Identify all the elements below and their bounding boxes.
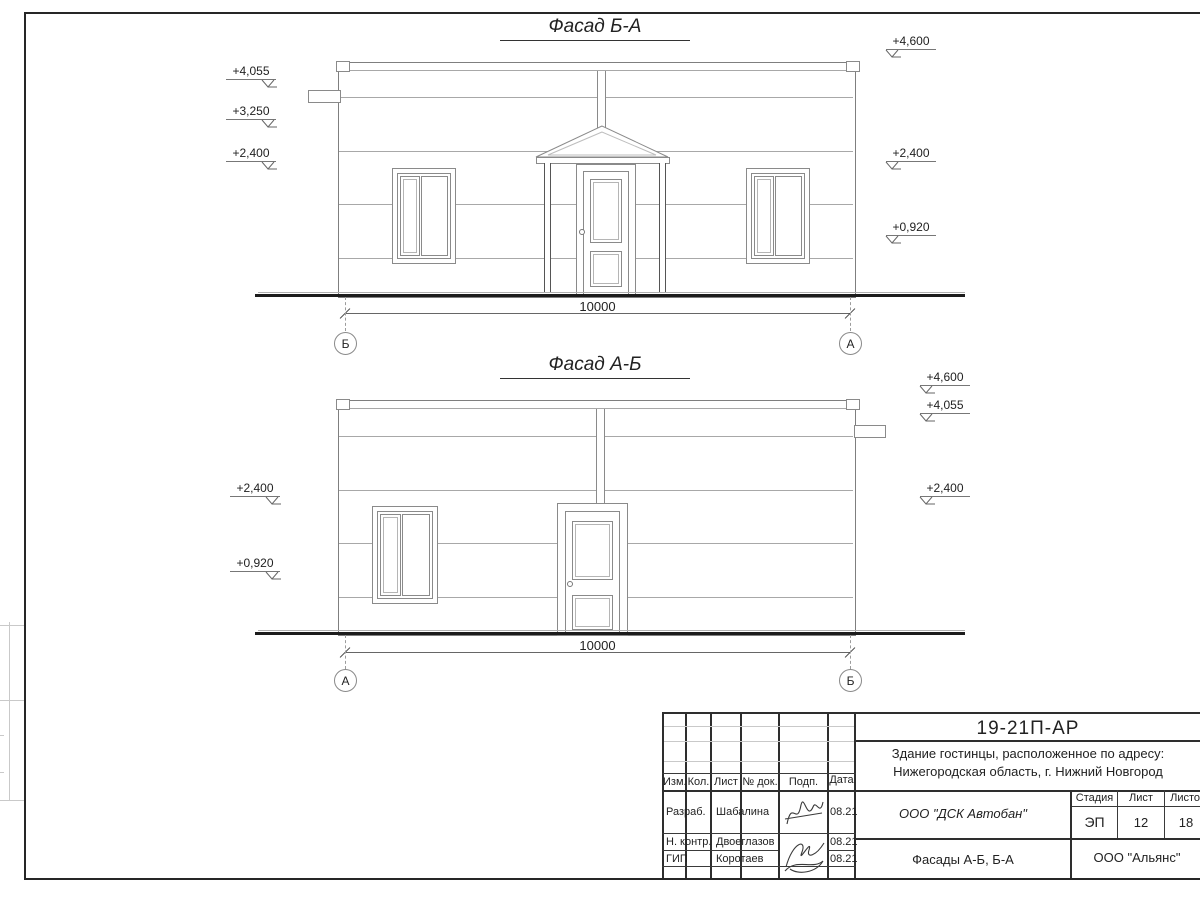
elevation-mark: +2,400 xyxy=(886,146,936,162)
facade2-title: Фасад А-Б xyxy=(500,354,690,379)
rev-header-izm: Изм. xyxy=(663,776,686,788)
elevation-value: +4,600 xyxy=(892,34,929,48)
facade1-axis-bubble-left: Б xyxy=(334,332,357,355)
role-name: Двоеглазов xyxy=(716,836,774,848)
elevation-mark: +2,400 xyxy=(920,481,970,497)
elevation-value: +2,400 xyxy=(236,481,273,495)
titleblock-row-line xyxy=(662,850,778,851)
margin-table-line xyxy=(9,622,10,800)
elevation-mark: +4,055 xyxy=(920,398,970,414)
facade1-axis-bubble-right: А xyxy=(839,332,862,355)
facade1-axis-extension-right xyxy=(850,297,851,331)
facade2-window-sash-inner xyxy=(383,517,398,593)
elevation-value: +3,250 xyxy=(232,104,269,118)
elevation-arrow-icon xyxy=(264,571,282,581)
role-date: 08.21 xyxy=(830,836,858,848)
facade1-dimension-label: 10000 xyxy=(560,299,635,314)
facade1-window-left-sash-inner xyxy=(403,179,417,253)
facade2-title-text: Фасад А-Б xyxy=(549,354,642,375)
rev-header-ndok: № док. xyxy=(742,776,778,788)
facade2-ground-line xyxy=(255,632,965,635)
facade1-door-panel-upper-inner xyxy=(593,182,619,240)
role-date: 08.21 xyxy=(830,853,858,865)
sheet-frame-left xyxy=(24,12,26,880)
elevation-mark: +0,920 xyxy=(886,220,936,236)
elevation-arrow-icon xyxy=(260,119,278,129)
facade2-axis-bubble-left: А xyxy=(334,669,357,692)
elevation-value: +4,055 xyxy=(232,64,269,78)
elevation-arrow-icon xyxy=(264,496,282,506)
porch-column-left xyxy=(544,163,551,293)
facade1-window-right-sash-inner xyxy=(757,179,771,253)
role-name: Коротаев xyxy=(716,853,764,865)
porch-eaves-board xyxy=(536,157,670,164)
elevation-mark: +2,400 xyxy=(226,146,276,162)
margin-table-line xyxy=(0,800,24,801)
role-label: Н. контр. xyxy=(666,836,711,848)
facade1-ground-line xyxy=(255,294,965,297)
facade1-title: Фасад Б-А xyxy=(500,16,690,41)
elevation-arrow-icon xyxy=(918,496,936,506)
facade2-pipe-outlet xyxy=(854,425,886,438)
titleblock-border xyxy=(662,712,664,878)
role-date: 08.21 xyxy=(830,806,858,818)
facade2-apron-line xyxy=(258,630,965,631)
rev-header-kol: Кол. xyxy=(687,776,710,788)
elevation-mark: +4,600 xyxy=(886,34,936,50)
elevation-value: +2,400 xyxy=(892,146,929,160)
facade1-door-handle xyxy=(579,229,585,235)
elevation-value: +4,600 xyxy=(926,370,963,384)
axis-letter: А xyxy=(341,674,349,688)
signature-razrab xyxy=(782,793,826,833)
facade1-siding-line xyxy=(339,97,853,98)
rev-header-list: Лист xyxy=(712,776,740,788)
elevation-arrow-icon xyxy=(260,79,278,89)
elevation-mark: +0,920 xyxy=(230,556,280,572)
stage-value: ЭП xyxy=(1072,814,1117,830)
margin-table-line xyxy=(0,700,24,701)
porch-gable-roof xyxy=(534,124,670,160)
sheets-label: Листов xyxy=(1165,792,1200,804)
facade2-axis-bubble-right: Б xyxy=(839,669,862,692)
elevation-value: +0,920 xyxy=(236,556,273,570)
elevation-mark: +4,600 xyxy=(920,370,970,386)
margin-table-mark xyxy=(0,772,4,773)
titleblock-row-line xyxy=(856,838,1200,840)
elevation-mark: +3,250 xyxy=(226,104,276,120)
facade1-apron-line xyxy=(258,292,965,293)
facade2-vent-pipe xyxy=(596,409,605,506)
elevation-value: +2,400 xyxy=(926,481,963,495)
facade2-dimension-line xyxy=(345,652,850,653)
titleblock-border xyxy=(662,712,1200,714)
role-label: ГИП xyxy=(666,853,688,865)
titleblock-row-line xyxy=(662,773,856,774)
role-label: Разраб. xyxy=(666,806,706,818)
elevation-value: +4,055 xyxy=(926,398,963,412)
contractor-company-text: ООО "ДСК Автобан" xyxy=(899,806,1027,821)
role-name: Шабалина xyxy=(716,806,769,818)
facade1-axis-extension-left xyxy=(345,297,346,331)
titleblock-row-line xyxy=(827,850,856,851)
object-line1-text: Здание гостинцы, расположенное по адресу… xyxy=(892,746,1164,761)
axis-letter: Б xyxy=(342,337,350,351)
design-org-text: ООО "Альянс" xyxy=(1094,850,1181,865)
facade1-door-panel-lower-inner xyxy=(593,254,619,284)
elevation-mark: +2,400 xyxy=(230,481,280,497)
facade2-axis-extension-right xyxy=(850,635,851,669)
sheet-frame-bottom xyxy=(24,878,1200,880)
elevation-value: +2,400 xyxy=(232,146,269,160)
titleblock-row-line xyxy=(1072,806,1200,807)
rev-header-podp: Подп. xyxy=(780,776,827,788)
elevation-arrow-icon xyxy=(918,385,936,395)
facade2-door-handle xyxy=(567,581,573,587)
margin-table-mark xyxy=(0,735,4,736)
elevation-arrow-icon xyxy=(884,49,902,59)
titleblock-faint-row xyxy=(664,726,854,727)
rev-header-data: Дата xyxy=(829,774,854,786)
facade1-vent-pipe xyxy=(597,71,606,131)
drawing-sheet: Фасад Б-А 10000 Б xyxy=(0,0,1200,900)
axis-letter: Б xyxy=(847,674,855,688)
margin-table-line xyxy=(0,625,24,626)
stage-label: Стадия xyxy=(1072,792,1117,804)
facade2-window-sash-wide xyxy=(402,514,430,596)
elevation-arrow-icon xyxy=(884,161,902,171)
drawing-title-text: Фасады А-Б, Б-А xyxy=(912,852,1014,867)
facade2-axis-extension-left xyxy=(345,635,346,669)
facade1-title-text: Фасад Б-А xyxy=(549,16,642,37)
facade2-parapet-cap-left xyxy=(336,399,350,410)
sheets-total: 18 xyxy=(1165,815,1200,830)
elevation-arrow-icon xyxy=(918,413,936,423)
facade1-pipe-outlet xyxy=(308,90,341,103)
facade2-parapet-cap-right xyxy=(846,399,860,410)
elevation-arrow-icon xyxy=(260,161,278,171)
axis-letter: А xyxy=(846,337,854,351)
elevation-arrow-icon xyxy=(884,235,902,245)
facade1-window-left-sash-wide xyxy=(421,176,448,256)
facade2-door-panel-lower-inner xyxy=(575,598,610,627)
sheet-number: 12 xyxy=(1118,815,1164,830)
titleblock-faint-row xyxy=(664,741,854,742)
sheet-frame-top xyxy=(24,12,1200,14)
facade1-parapet-cap-right xyxy=(846,61,860,72)
elevation-mark: +4,055 xyxy=(226,64,276,80)
titleblock-row-line xyxy=(856,740,1200,742)
facade2-dimension-label: 10000 xyxy=(560,638,635,653)
facade1-parapet-line xyxy=(338,70,854,71)
porch-column-right xyxy=(659,163,666,293)
facade1-dimension-line xyxy=(345,313,850,314)
elevation-value: +0,920 xyxy=(892,220,929,234)
titleblock-faint-row xyxy=(664,761,854,762)
titleblock-divider xyxy=(710,712,712,878)
facade1-window-right-sash-wide xyxy=(775,176,802,256)
document-code-text: 19-21П-АР xyxy=(977,718,1080,740)
object-line2-text: Нижегородская область, г. Нижний Новгоро… xyxy=(893,764,1163,779)
facade2-door-panel-upper-inner xyxy=(575,524,610,577)
signature-nkontr-gip xyxy=(780,833,828,876)
facade1-parapet-cap-left xyxy=(336,61,350,72)
sheet-label: Лист xyxy=(1118,792,1164,804)
